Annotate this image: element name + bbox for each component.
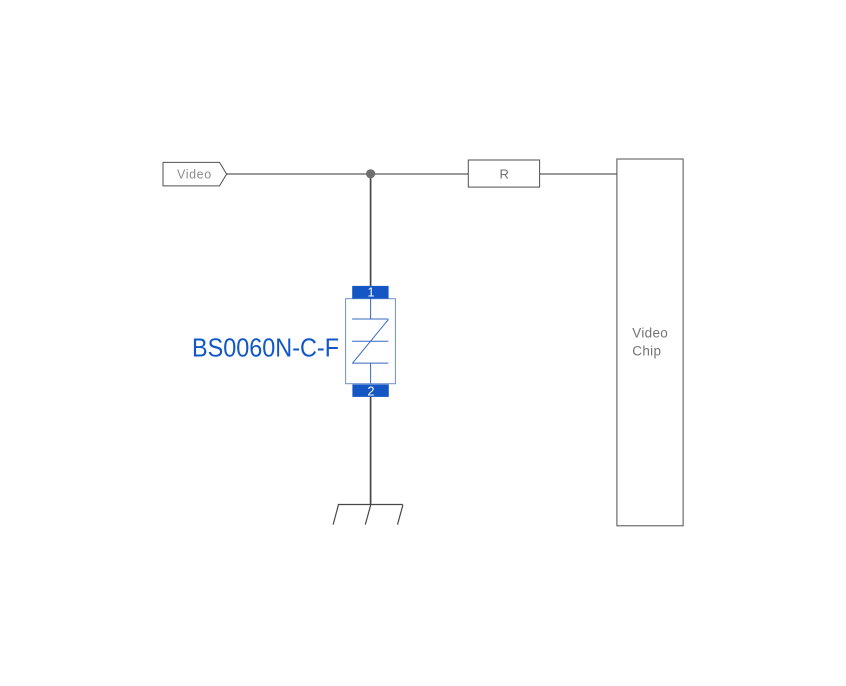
svg-text:R: R — [500, 167, 509, 182]
svg-text:BS0060N-C-F: BS0060N-C-F — [192, 334, 339, 362]
svg-text:Chip: Chip — [632, 344, 661, 359]
svg-text:2: 2 — [368, 384, 375, 398]
svg-text:1: 1 — [368, 286, 375, 300]
svg-text:Video: Video — [632, 326, 668, 341]
svg-text:Video: Video — [177, 168, 212, 182]
